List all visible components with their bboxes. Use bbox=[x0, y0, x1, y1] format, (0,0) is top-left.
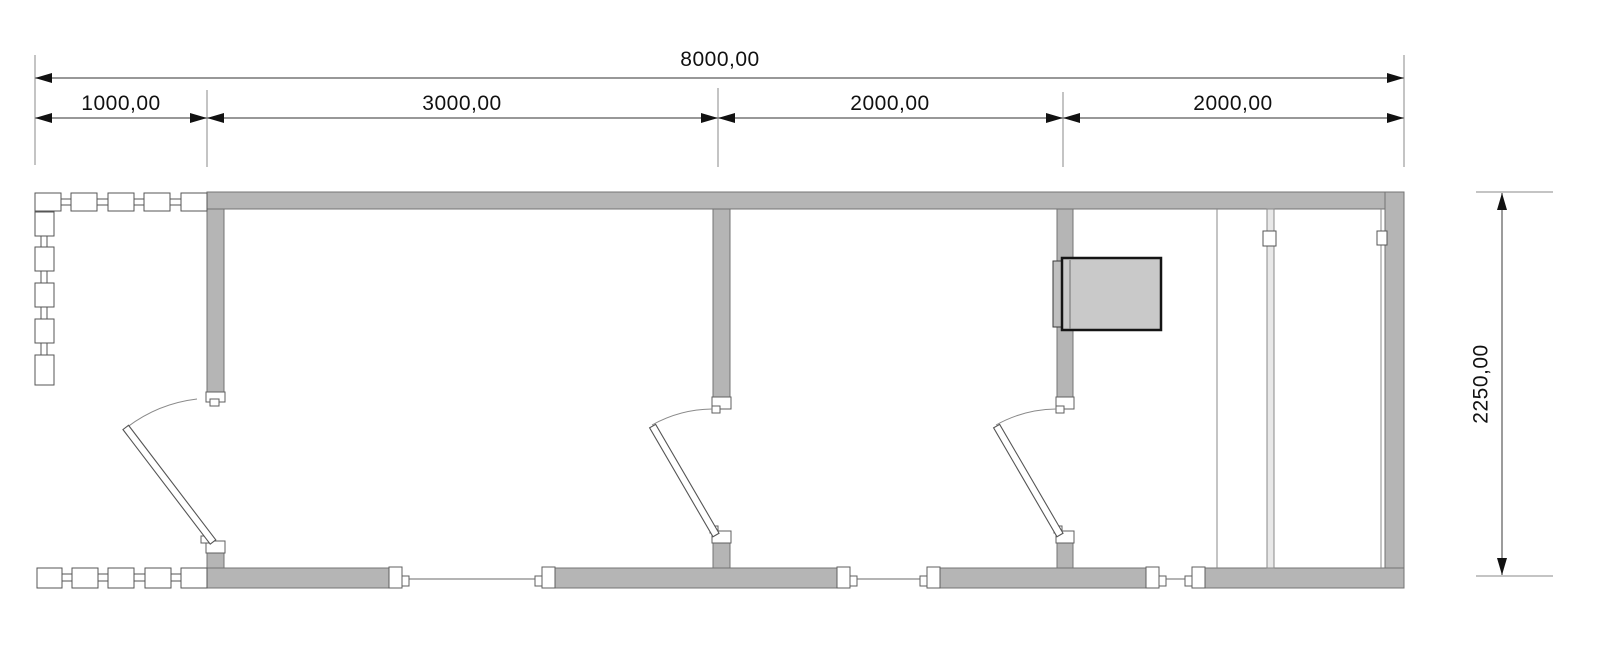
appliance-back-strip bbox=[1053, 261, 1062, 327]
door2-top-jamb-stop bbox=[712, 406, 720, 413]
appliance-body bbox=[1062, 258, 1161, 330]
door-1 bbox=[123, 399, 216, 544]
outer-wall-bottom-seg3 bbox=[940, 568, 1147, 588]
outer-wall-right bbox=[1385, 192, 1404, 588]
appliance bbox=[1053, 258, 1161, 330]
segment-label-room3: 2000,00 bbox=[1193, 92, 1272, 115]
window1-left-stop bbox=[402, 576, 409, 586]
fence-post bbox=[35, 193, 61, 211]
fence-post bbox=[35, 212, 54, 236]
window3-left-stop bbox=[1159, 576, 1166, 586]
segment-label-room1: 3000,00 bbox=[422, 92, 501, 115]
door1-swing-arc bbox=[126, 399, 197, 428]
closet-layer bbox=[1217, 209, 1387, 568]
fence-post bbox=[72, 568, 98, 588]
outer-wall-top bbox=[207, 192, 1404, 209]
outer-wall-bottom-seg4 bbox=[1205, 568, 1404, 588]
fence-post bbox=[145, 568, 171, 588]
partition-2-lower-stub bbox=[1057, 543, 1073, 568]
top-dimension: 8000,00 bbox=[35, 48, 1404, 83]
door2-leaf bbox=[650, 424, 719, 536]
window3-right-jamb bbox=[1192, 567, 1205, 588]
sliding-panel-right-handle bbox=[1377, 231, 1387, 245]
door-2 bbox=[650, 409, 719, 537]
fence-post bbox=[37, 568, 62, 588]
window2-left-stop bbox=[850, 576, 857, 586]
dimension-arrow bbox=[1387, 113, 1404, 123]
door1-top-jamb-stop bbox=[210, 399, 219, 406]
dimension-arrow bbox=[35, 113, 52, 123]
door3-leaf bbox=[994, 424, 1063, 536]
segment-dimensions: 1000,00 3000,00 2000,00 2000,00 bbox=[35, 92, 1404, 123]
window1-right-stop bbox=[535, 576, 542, 586]
fence-post bbox=[108, 193, 134, 211]
outer-wall-bottom-seg1 bbox=[207, 568, 390, 588]
window-2 bbox=[837, 567, 940, 588]
door-3 bbox=[994, 409, 1063, 537]
sliding-panel-middle bbox=[1267, 209, 1274, 568]
dimension-arrow bbox=[1497, 558, 1507, 575]
dimensions-layer: 8000,00 1000,00 3000,00 2000,00 2000,00 bbox=[35, 48, 1553, 576]
window-1 bbox=[389, 567, 555, 588]
outer-wall-bottom-seg2 bbox=[544, 568, 838, 588]
segment-label-porch: 1000,00 bbox=[81, 92, 160, 115]
dimension-arrow bbox=[1046, 113, 1063, 123]
window2-right-jamb bbox=[927, 567, 940, 588]
door2-swing-arc bbox=[652, 409, 712, 425]
fence-post bbox=[181, 193, 207, 211]
doors-layer bbox=[123, 399, 1063, 544]
door-jambs-layer bbox=[201, 392, 1074, 553]
window3-right-stop bbox=[1185, 576, 1192, 586]
left-wall-lower-stub bbox=[207, 552, 224, 568]
dimension-arrow bbox=[718, 113, 735, 123]
dimension-arrow bbox=[190, 113, 207, 123]
window2-left-jamb bbox=[837, 567, 850, 588]
floor-plan-drawing: 8000,00 1000,00 3000,00 2000,00 2000,00 bbox=[0, 0, 1600, 645]
window1-left-jamb bbox=[389, 567, 402, 588]
sliding-panel-middle-handle bbox=[1263, 231, 1276, 246]
dimension-arrow bbox=[1387, 73, 1404, 83]
dimension-arrow bbox=[1063, 113, 1080, 123]
segment-label-room2: 2000,00 bbox=[850, 92, 929, 115]
fence-post bbox=[35, 247, 54, 271]
fence-column-left bbox=[35, 212, 54, 385]
fence-row-top bbox=[35, 193, 207, 211]
fence-post bbox=[144, 193, 170, 211]
walls-layer bbox=[207, 192, 1404, 588]
fence-post bbox=[108, 568, 134, 588]
partition-1-lower-stub bbox=[713, 543, 730, 568]
partition-1-upper bbox=[713, 209, 730, 397]
total-width-label: 8000,00 bbox=[680, 48, 759, 71]
fence-post bbox=[35, 355, 54, 385]
left-wall-upper bbox=[207, 209, 224, 392]
door3-swing-arc bbox=[996, 409, 1056, 425]
fence-post bbox=[35, 319, 54, 343]
window3-left-jamb bbox=[1146, 567, 1159, 588]
window-3 bbox=[1146, 567, 1205, 588]
fence-post bbox=[181, 568, 207, 588]
fence-row-bottom bbox=[37, 568, 207, 588]
dimension-arrow bbox=[35, 73, 52, 83]
fence-post bbox=[35, 283, 54, 307]
height-label: 2250,00 bbox=[1470, 344, 1493, 423]
dimension-arrow bbox=[207, 113, 224, 123]
door1-leaf bbox=[123, 425, 216, 544]
window2-right-stop bbox=[920, 576, 927, 586]
porch-railing bbox=[35, 193, 207, 588]
window1-right-jamb bbox=[542, 567, 555, 588]
floor-plan-canvas: 8000,00 1000,00 3000,00 2000,00 2000,00 bbox=[0, 0, 1600, 645]
height-dimension: 2250,00 bbox=[1470, 192, 1554, 576]
dimension-arrow bbox=[701, 113, 718, 123]
fence-post bbox=[71, 193, 97, 211]
door3-top-jamb-stop bbox=[1056, 406, 1064, 413]
dimension-arrow bbox=[1497, 193, 1507, 210]
